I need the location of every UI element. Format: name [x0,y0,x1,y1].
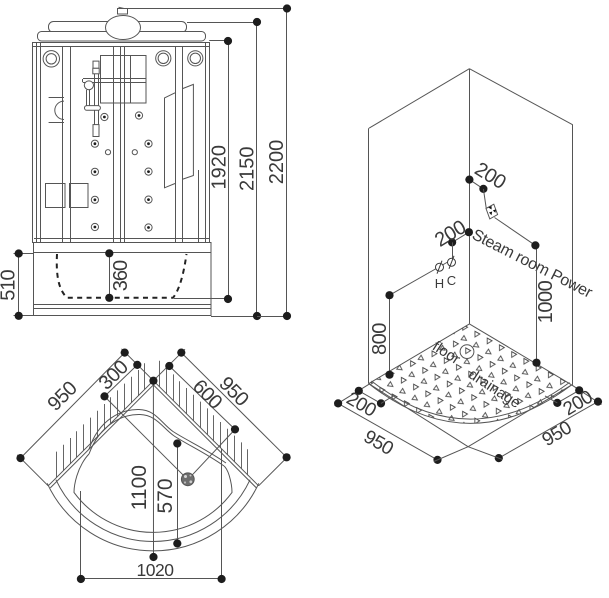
svg-text:950: 950 [360,426,397,459]
svg-text:2200: 2200 [266,140,288,185]
svg-text:300: 300 [95,356,133,394]
svg-text:1020: 1020 [137,560,175,580]
svg-text:1920: 1920 [209,145,231,190]
svg-text:950: 950 [539,418,576,452]
svg-text:950: 950 [43,377,81,415]
svg-text:2150: 2150 [237,146,259,191]
svg-text:800: 800 [369,323,391,355]
svg-text:360: 360 [110,260,132,291]
svg-text:510: 510 [0,269,20,300]
svg-text:C: C [447,273,456,288]
svg-text:200: 200 [560,387,597,421]
svg-text:1000: 1000 [535,280,557,323]
svg-text:H: H [435,276,444,291]
svg-text:1100: 1100 [128,465,151,510]
svg-text:950: 950 [214,373,252,411]
svg-text:200: 200 [471,158,510,194]
svg-text:570: 570 [154,478,177,513]
svg-text:200: 200 [431,216,470,251]
svg-text:Steam room Power: Steam room Power [469,226,595,302]
